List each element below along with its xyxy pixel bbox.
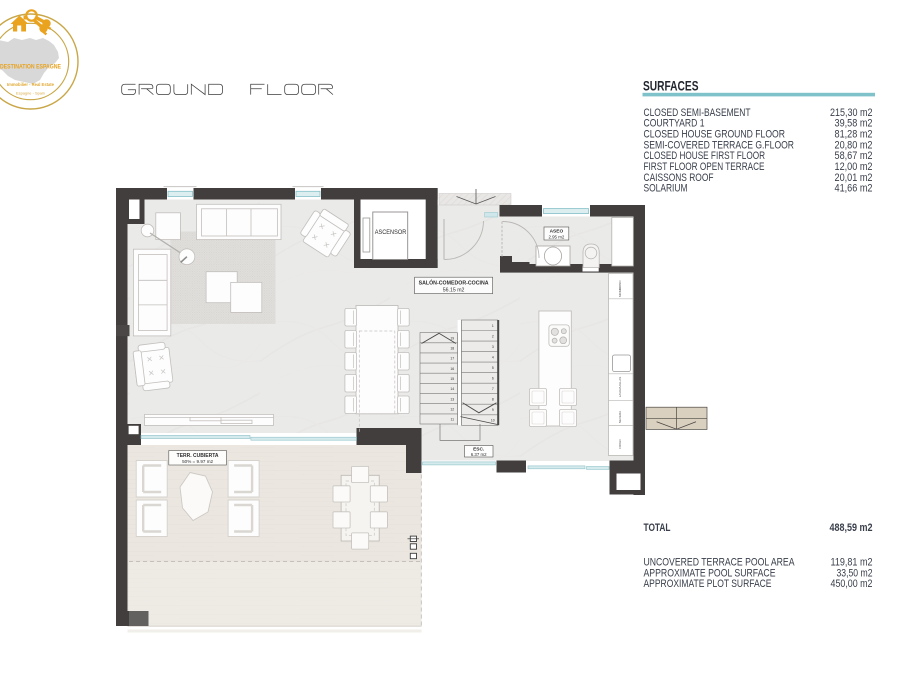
svg-text:10: 10 bbox=[491, 419, 495, 423]
svg-text:17: 17 bbox=[450, 357, 454, 361]
svg-text:4: 4 bbox=[492, 356, 494, 360]
svg-text:41,66 m2: 41,66 m2 bbox=[835, 183, 873, 195]
svg-text:18: 18 bbox=[450, 347, 454, 351]
svg-text:FRIGO: FRIGO bbox=[618, 439, 622, 449]
svg-text:SURFACES: SURFACES bbox=[643, 79, 699, 94]
svg-text:19: 19 bbox=[450, 336, 454, 340]
svg-text:Espagne - Spain: Espagne - Spain bbox=[16, 92, 45, 96]
svg-text:14: 14 bbox=[450, 387, 454, 391]
svg-text:LAVAVAJILLAS: LAVAVAJILLAS bbox=[618, 377, 622, 397]
svg-text:9: 9 bbox=[492, 408, 494, 412]
svg-text:50% = 9.97 m2: 50% = 9.97 m2 bbox=[182, 459, 213, 464]
svg-text:12: 12 bbox=[450, 408, 454, 412]
svg-text:SALÓN-COMEDOR-COCINA: SALÓN-COMEDOR-COCINA bbox=[419, 278, 489, 286]
svg-text:13: 13 bbox=[450, 397, 454, 401]
svg-text:1: 1 bbox=[492, 324, 494, 328]
svg-text:488,59 m2: 488,59 m2 bbox=[830, 522, 873, 534]
svg-text:6: 6 bbox=[492, 377, 494, 381]
svg-text:7: 7 bbox=[492, 387, 494, 391]
svg-text:8: 8 bbox=[492, 398, 494, 402]
svg-text:11: 11 bbox=[451, 418, 455, 422]
svg-text:2: 2 bbox=[492, 334, 494, 338]
svg-text:2.95 m2: 2.95 m2 bbox=[548, 234, 564, 239]
svg-text:MICRO: MICRO bbox=[618, 286, 622, 297]
svg-text:Immobilier - Real Estate: Immobilier - Real Estate bbox=[7, 82, 55, 87]
svg-text:56.15 m2: 56.15 m2 bbox=[443, 287, 465, 293]
svg-text:DESTINATION ESPAGNE: DESTINATION ESPAGNE bbox=[0, 65, 61, 71]
svg-text:ASCENSOR: ASCENSOR bbox=[375, 229, 407, 236]
svg-text:APPROXIMATE PLOT SURFACE: APPROXIMATE PLOT SURFACE bbox=[644, 578, 772, 590]
svg-text:15: 15 bbox=[450, 377, 454, 381]
svg-text:16: 16 bbox=[450, 367, 454, 371]
svg-text:6.37 m2: 6.37 m2 bbox=[471, 452, 487, 457]
svg-text:5: 5 bbox=[492, 366, 494, 370]
svg-text:3: 3 bbox=[492, 345, 494, 349]
svg-text:450,00 m2: 450,00 m2 bbox=[831, 578, 873, 590]
svg-text:TERR. CUBIERTA: TERR. CUBIERTA bbox=[177, 453, 219, 459]
svg-text:NEVERA: NEVERA bbox=[618, 411, 622, 423]
svg-text:SOLARIUM: SOLARIUM bbox=[644, 183, 688, 195]
svg-text:TOTAL: TOTAL bbox=[644, 522, 671, 534]
